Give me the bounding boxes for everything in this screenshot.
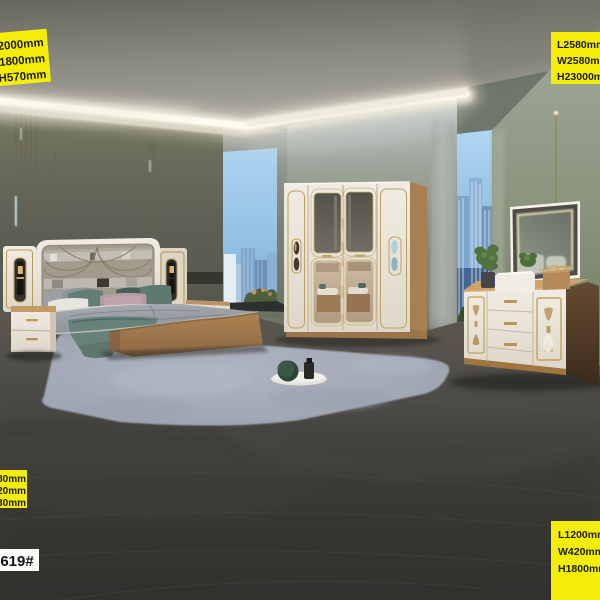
svg-text:L1200mm: L1200mm <box>558 529 600 541</box>
svg-text:W420mm: W420mm <box>558 546 600 558</box>
svg-text:W2580mm: W2580mm <box>557 55 600 67</box>
svg-text:H23000mm: H23000mm <box>557 71 600 83</box>
svg-text:W420mm: W420mm <box>0 486 26 497</box>
svg-text:H1800mm: H1800mm <box>558 563 600 575</box>
svg-text:L1280mm: L1280mm <box>0 474 26 485</box>
svg-text:619#: 619# <box>0 553 34 570</box>
svg-text:L2580mm: L2580mm <box>557 39 600 51</box>
svg-text:H1830mm: H1830mm <box>0 498 26 509</box>
